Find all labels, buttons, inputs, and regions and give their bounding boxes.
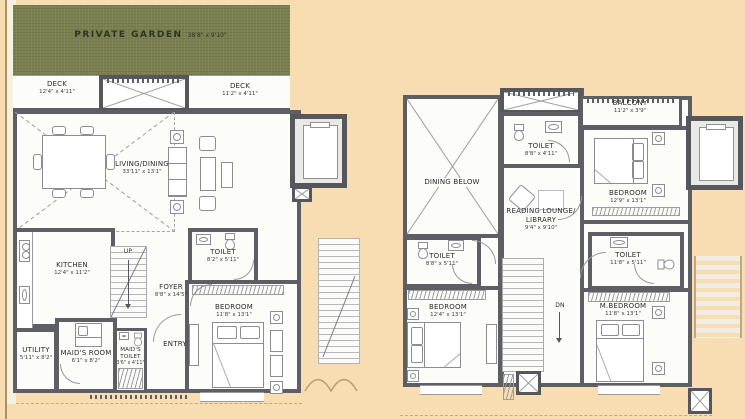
window <box>200 392 264 402</box>
kitchen-label: KITCHEN 12'4" x 11'2" <box>33 261 111 277</box>
up-label: UP <box>112 248 144 256</box>
dresser-icon <box>270 355 283 377</box>
void-cross <box>407 99 498 234</box>
nightstand-icon <box>170 130 184 144</box>
dn-arrow-icon <box>559 312 560 338</box>
bedroom-label: BEDROOM 11'8" x 13'1" <box>200 303 268 319</box>
armchair-icon <box>199 196 216 211</box>
chair-icon <box>52 189 66 198</box>
maids-toilet-label: MAID'S TOILET 3'6" x 4'11" <box>113 347 148 368</box>
plot-boundary-dashed <box>16 403 302 404</box>
reading-lounge-label: READING LOUNGE/ LIBRARY 9'4" x 9'10" <box>504 207 578 232</box>
tv-unit-icon <box>221 162 233 188</box>
bed-icon <box>75 323 102 347</box>
dn-arrow-icon <box>556 338 562 343</box>
chair-icon <box>33 154 42 170</box>
deck-left-label: DECK 12'4" x 4'11" <box>18 80 96 96</box>
shaft-hatch <box>516 371 541 395</box>
sink-icon <box>119 332 129 340</box>
chair-icon <box>80 126 94 135</box>
bed-icon <box>594 138 648 184</box>
toilet-top-label: TOILET 8'8" x 4'11" <box>511 142 571 158</box>
railing <box>508 92 574 96</box>
wardrobe-hatch <box>408 290 486 300</box>
wc-icon <box>133 333 143 347</box>
void-cross <box>103 79 185 108</box>
lift-icon <box>686 116 743 190</box>
living-dining-label: LIVING/DINING 33'11" x 13'1" <box>97 160 187 176</box>
wc-icon <box>513 124 525 141</box>
sink-icon <box>610 237 628 248</box>
dining-below-void <box>403 95 502 238</box>
chair-icon <box>80 189 94 198</box>
bed-icon <box>212 322 264 388</box>
private-garden-label: PRIVATE GARDEN 38'8" x 9'10" <box>53 22 248 43</box>
stairs-icon <box>502 258 544 372</box>
toilet-mid-right-label: TOILET 11'8" x 5'11" <box>598 251 658 267</box>
railing <box>107 79 181 83</box>
foyer-label: FOYER 8'8" x 14'5" <box>149 283 193 299</box>
arch-icon <box>303 366 359 392</box>
wc-icon <box>658 259 675 271</box>
lift-door-icon <box>706 124 726 130</box>
toilet-mid-left-label: TOILET 8'8" x 5'11" <box>412 252 472 268</box>
window <box>420 385 482 395</box>
shaft-hatch <box>118 368 143 389</box>
pergola-icon <box>694 256 742 338</box>
armchair-icon <box>199 136 216 151</box>
planter-icon <box>99 75 189 112</box>
shaft-hatch <box>292 186 312 202</box>
private-garden-title: PRIVATE GARDEN <box>74 30 182 40</box>
sink-icon <box>545 121 562 133</box>
lift-car-icon <box>699 127 734 181</box>
nightstand-icon <box>652 132 665 145</box>
floor-plan-canvas: PRIVATE GARDEN 38'8" x 9'10" DECK 12'4" … <box>0 0 745 419</box>
sink-icon <box>19 286 30 304</box>
window <box>598 385 660 395</box>
bed-icon <box>407 322 461 368</box>
lift-icon <box>290 114 347 188</box>
bed-icon <box>596 320 644 382</box>
nightstand-icon <box>652 362 665 375</box>
utility-label: UTILITY 5'11" x 8'2" <box>14 346 58 362</box>
dn-label: DN <box>549 302 571 310</box>
shaft-hatch <box>688 388 712 414</box>
bedroom-left-label: BEDROOM 12'4" x 13'1" <box>414 303 482 319</box>
toilet-label: TOILET 8'2" x 5'11" <box>193 248 253 264</box>
planter-icon <box>500 88 582 114</box>
stove-icon <box>19 240 30 262</box>
bedroom-top-label: BEDROOM 12'9" x 13'1" <box>597 189 659 205</box>
dresser-icon <box>486 324 497 364</box>
coffee-table-icon <box>200 157 216 191</box>
sink-icon <box>196 234 211 245</box>
entry-label: ENTRY <box>154 340 196 349</box>
sink-icon <box>448 240 464 251</box>
dresser-icon <box>270 330 283 352</box>
dining-below-label: DINING BELOW <box>421 178 483 187</box>
stairs-icon <box>318 238 360 364</box>
m-bedroom-label: M.BEDROOM 11'8" x 13'1" <box>591 302 655 318</box>
shaft-hatch <box>503 374 514 400</box>
plot-boundary-dashed <box>400 415 712 416</box>
nightstand-icon <box>407 370 419 382</box>
wardrobe-hatch <box>592 207 680 216</box>
maids-room-label: MAID'S ROOM 6'1" x 8'2" <box>59 349 113 365</box>
nightstand-icon <box>270 311 283 324</box>
nightstand-icon <box>170 200 184 214</box>
chair-icon <box>52 126 66 135</box>
deck-right-label: DECK 11'2" x 4'11" <box>198 82 282 98</box>
railing <box>90 395 190 399</box>
up-arrow-icon <box>125 304 131 309</box>
wardrobe-hatch <box>588 292 670 302</box>
balcony-label: BALCONY 11'2" x 3'9" <box>598 99 662 115</box>
lift-car-icon <box>303 125 338 179</box>
lift-door-icon <box>310 122 330 128</box>
up-arrow-icon <box>128 260 129 304</box>
private-garden-dim: 38'8" x 9'10" <box>188 32 227 39</box>
nightstand-icon <box>270 381 283 394</box>
